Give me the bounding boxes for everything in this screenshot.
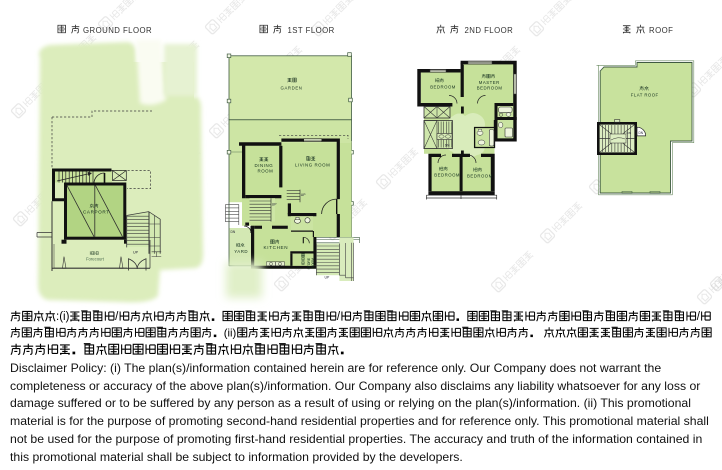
svg-text:LIVING ROOM: LIVING ROOM: [295, 162, 330, 167]
svg-text:BEDROOM: BEDROOM: [434, 173, 460, 178]
svg-text:MASTER: MASTER: [479, 80, 500, 85]
svg-text:UP: UP: [301, 193, 306, 197]
svg-text:GARDEN: GARDEN: [281, 85, 303, 90]
svg-text:1ST FLOOR: 1ST FLOOR: [288, 26, 335, 35]
svg-text:Forecourt: Forecourt: [86, 256, 105, 261]
svg-text:BEDROOM: BEDROOM: [477, 85, 503, 90]
svg-text:/: /: [337, 311, 341, 323]
svg-text:BEDROOM: BEDROOM: [467, 174, 493, 179]
svg-text:UP: UP: [325, 276, 331, 280]
svg-text:KITCHEN: KITCHEN: [264, 245, 289, 250]
svg-text:(ii): (ii): [224, 327, 237, 339]
svg-text:DN: DN: [627, 131, 631, 135]
svg-text:2ND FLOOR: 2ND FLOOR: [465, 26, 514, 35]
svg-text:FLAT ROOF: FLAT ROOF: [631, 93, 659, 98]
svg-text:UP: UP: [272, 203, 277, 207]
svg-text:ROOF: ROOF: [649, 26, 673, 35]
svg-text:GROUND FLOOR: GROUND FLOOR: [83, 26, 152, 35]
svg-text:YARD: YARD: [234, 249, 248, 254]
svg-text:ROOM: ROOM: [258, 168, 274, 173]
svg-text:CARPORT: CARPORT: [83, 210, 110, 215]
svg-text:UP: UP: [133, 250, 139, 254]
svg-text:DN: DN: [639, 131, 644, 135]
svg-text:BEDROOM: BEDROOM: [430, 85, 456, 90]
svg-text:/: /: [115, 311, 119, 323]
svg-text:DN: DN: [231, 230, 236, 234]
svg-text:/: /: [697, 311, 701, 323]
svg-text::(i): :(i): [56, 311, 70, 323]
svg-text:DINING: DINING: [255, 163, 274, 168]
svg-text:ROOM: ROOM: [311, 258, 315, 269]
svg-text:DN: DN: [445, 144, 450, 148]
